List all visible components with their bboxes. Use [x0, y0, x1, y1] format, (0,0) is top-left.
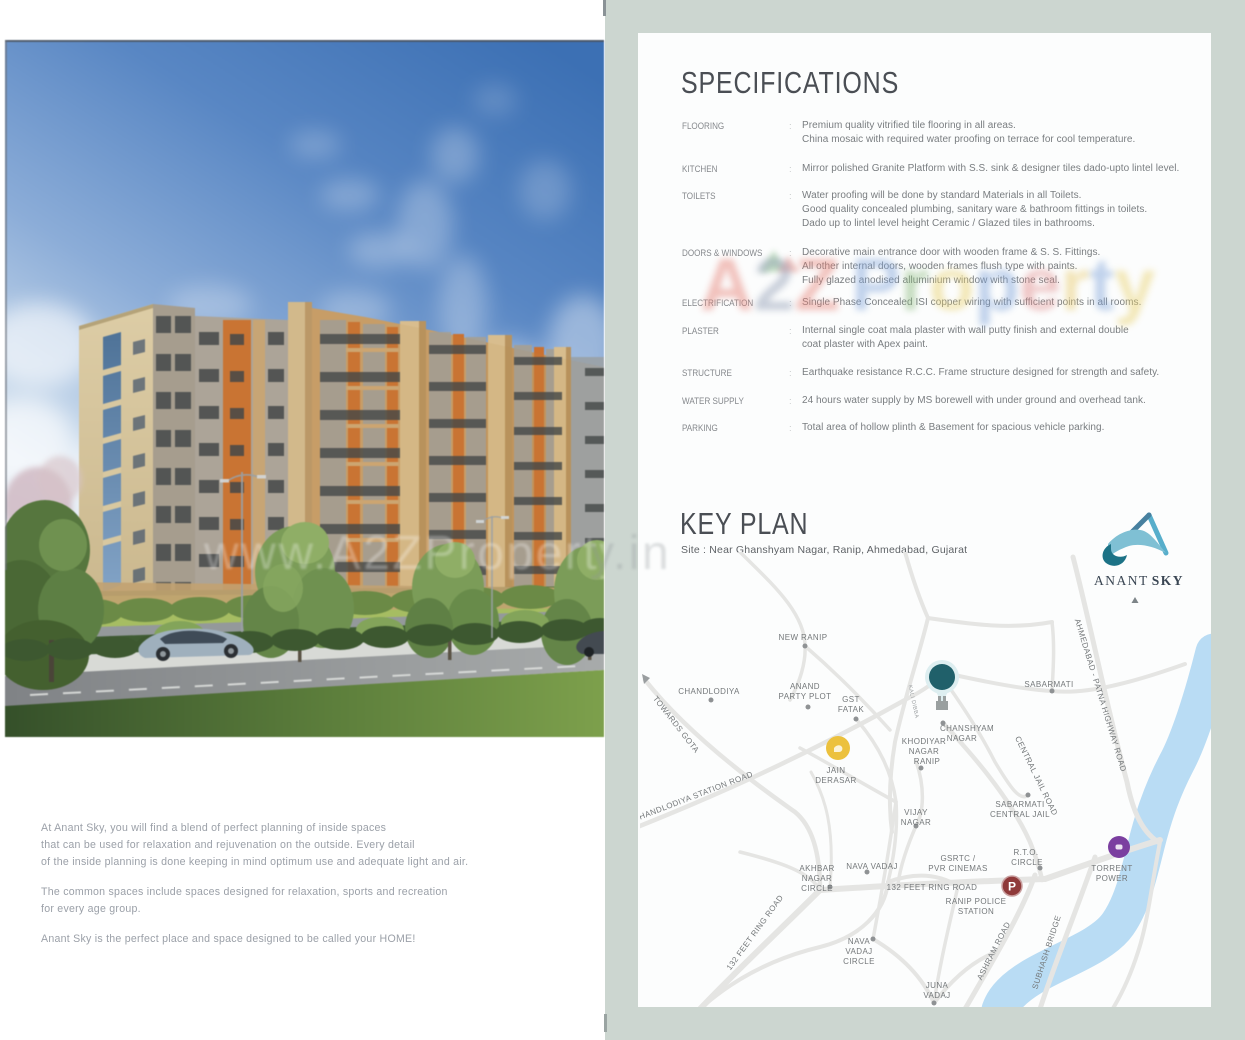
svg-text:CIRCLE: CIRCLE [1011, 858, 1043, 867]
svg-text:VADAJ: VADAJ [845, 947, 872, 956]
svg-text:GSRTC /: GSRTC / [940, 854, 975, 863]
svg-text:NAGAR: NAGAR [901, 818, 931, 827]
svg-text:AHMEDABAD - PATNA HIGHWAY ROAD: AHMEDABAD - PATNA HIGHWAY ROAD [1073, 618, 1128, 773]
svg-text:SABARMATI: SABARMATI [995, 800, 1044, 809]
svg-text:TOWARDS GOTA: TOWARDS GOTA [651, 694, 701, 755]
svg-text:NAGAR: NAGAR [802, 874, 832, 883]
svg-text:STATION: STATION [958, 907, 994, 916]
svg-text:GST: GST [842, 695, 860, 704]
svg-text:KHODIYAR: KHODIYAR [902, 737, 946, 746]
svg-text:CHANSHYAM: CHANSHYAM [940, 724, 994, 733]
svg-text:POWER: POWER [1096, 874, 1128, 883]
svg-text:CIRCLE: CIRCLE [801, 884, 833, 893]
svg-text:NAGAR: NAGAR [909, 747, 939, 756]
svg-text:NAVA: NAVA [848, 937, 870, 946]
svg-text:RANIP POLICE: RANIP POLICE [946, 897, 1007, 906]
svg-text:R.T.O.: R.T.O. [1013, 848, 1038, 857]
svg-text:SABARMATI: SABARMATI [1024, 680, 1073, 689]
svg-text:PARTY PLOT: PARTY PLOT [779, 692, 832, 701]
svg-text:RANIP: RANIP [914, 757, 940, 766]
svg-text:CHANDLODIYA: CHANDLODIYA [678, 687, 740, 696]
svg-text:132 FEET RING ROAD: 132 FEET RING ROAD [887, 883, 978, 892]
svg-text:CENTRAL JAIL: CENTRAL JAIL [990, 810, 1050, 819]
svg-text:JAIN: JAIN [827, 766, 846, 775]
svg-text:NAGAR: NAGAR [947, 734, 977, 743]
svg-text:NAVA VADAJ: NAVA VADAJ [846, 862, 898, 871]
svg-text:DERASAR: DERASAR [815, 776, 856, 785]
svg-text:P: P [1008, 880, 1016, 894]
svg-text:VADAJ: VADAJ [923, 991, 950, 1000]
svg-text:KALI DIBBA: KALI DIBBA [907, 685, 920, 719]
svg-text:JUNA: JUNA [926, 981, 949, 990]
svg-text:VIJAY: VIJAY [904, 808, 928, 817]
svg-text:FATAK: FATAK [838, 705, 864, 714]
svg-text:NEW RANIP: NEW RANIP [779, 633, 828, 642]
svg-text:CIRCLE: CIRCLE [843, 957, 875, 966]
svg-text:ANAND: ANAND [790, 682, 820, 691]
svg-text:CHANDLODIYA STATION ROAD: CHANDLODIYA STATION ROAD [640, 770, 754, 824]
svg-text:TORRENT: TORRENT [1091, 864, 1132, 873]
svg-text:PVR CINEMAS: PVR CINEMAS [928, 864, 988, 873]
svg-text:AKHBAR: AKHBAR [799, 864, 834, 873]
